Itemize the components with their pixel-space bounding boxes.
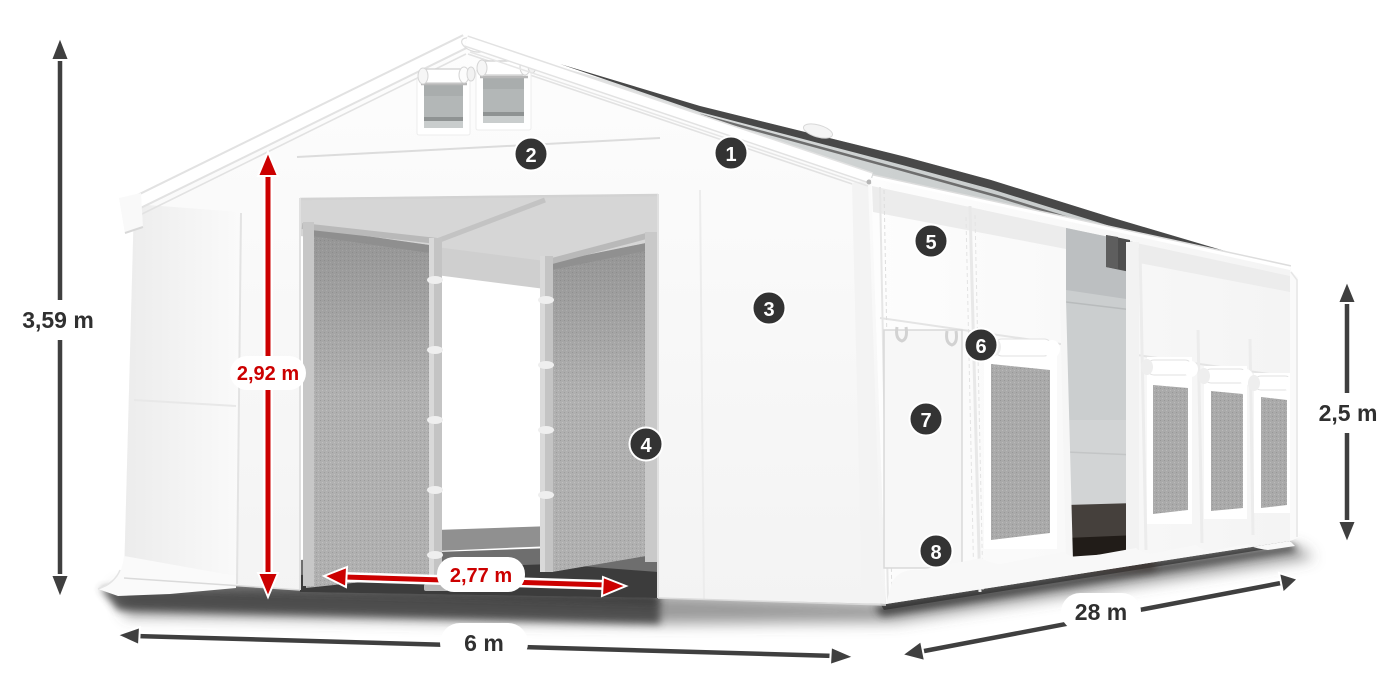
svg-text:4: 4	[640, 435, 652, 457]
svg-text:2,5 m: 2,5 m	[1319, 400, 1378, 426]
svg-text:7: 7	[920, 410, 931, 432]
svg-text:3,59 m: 3,59 m	[22, 307, 94, 333]
svg-text:3: 3	[763, 299, 774, 321]
svg-text:2: 2	[525, 145, 536, 167]
svg-text:2,77 m: 2,77 m	[450, 565, 512, 587]
svg-text:8: 8	[930, 542, 941, 564]
svg-text:28 m: 28 m	[1075, 599, 1127, 625]
svg-text:6 m: 6 m	[464, 630, 504, 656]
svg-text:5: 5	[925, 232, 936, 254]
svg-text:1: 1	[725, 144, 736, 166]
svg-text:6: 6	[975, 336, 986, 358]
svg-text:2,92 m: 2,92 m	[237, 363, 299, 385]
